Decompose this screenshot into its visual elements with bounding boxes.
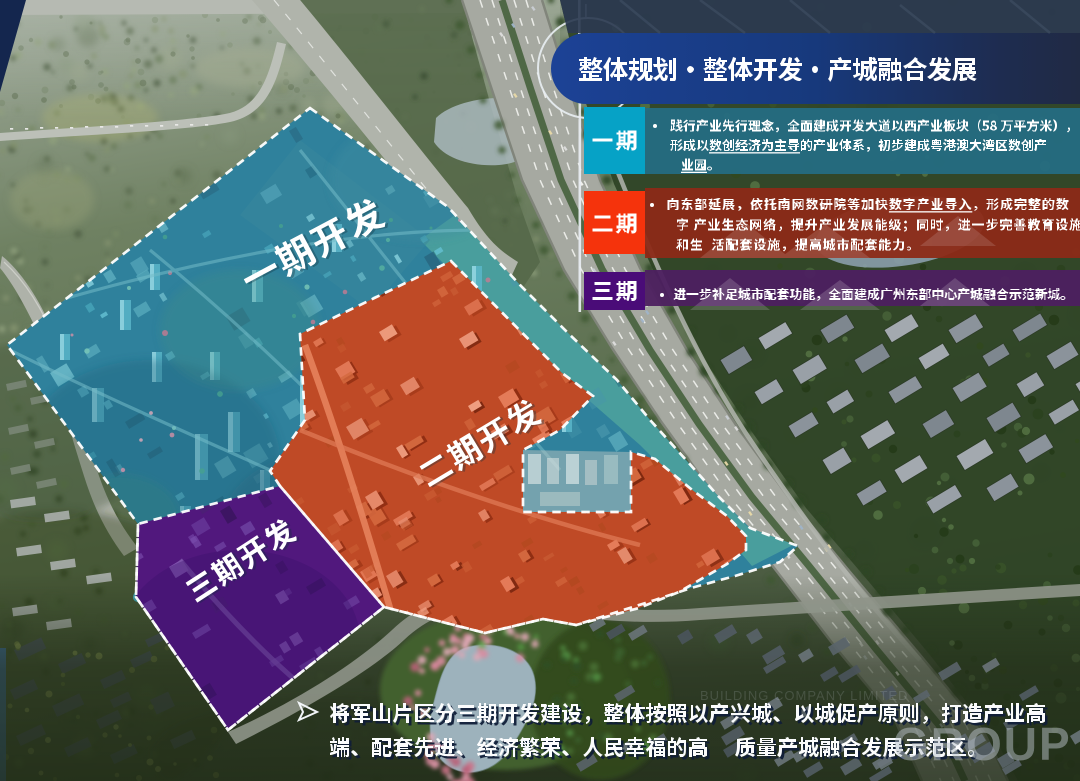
svg-text:GROUP: GROUP xyxy=(893,718,1072,770)
svg-text:BUILDING COMPANY LIMITED: BUILDING COMPANY LIMITED xyxy=(700,688,908,703)
